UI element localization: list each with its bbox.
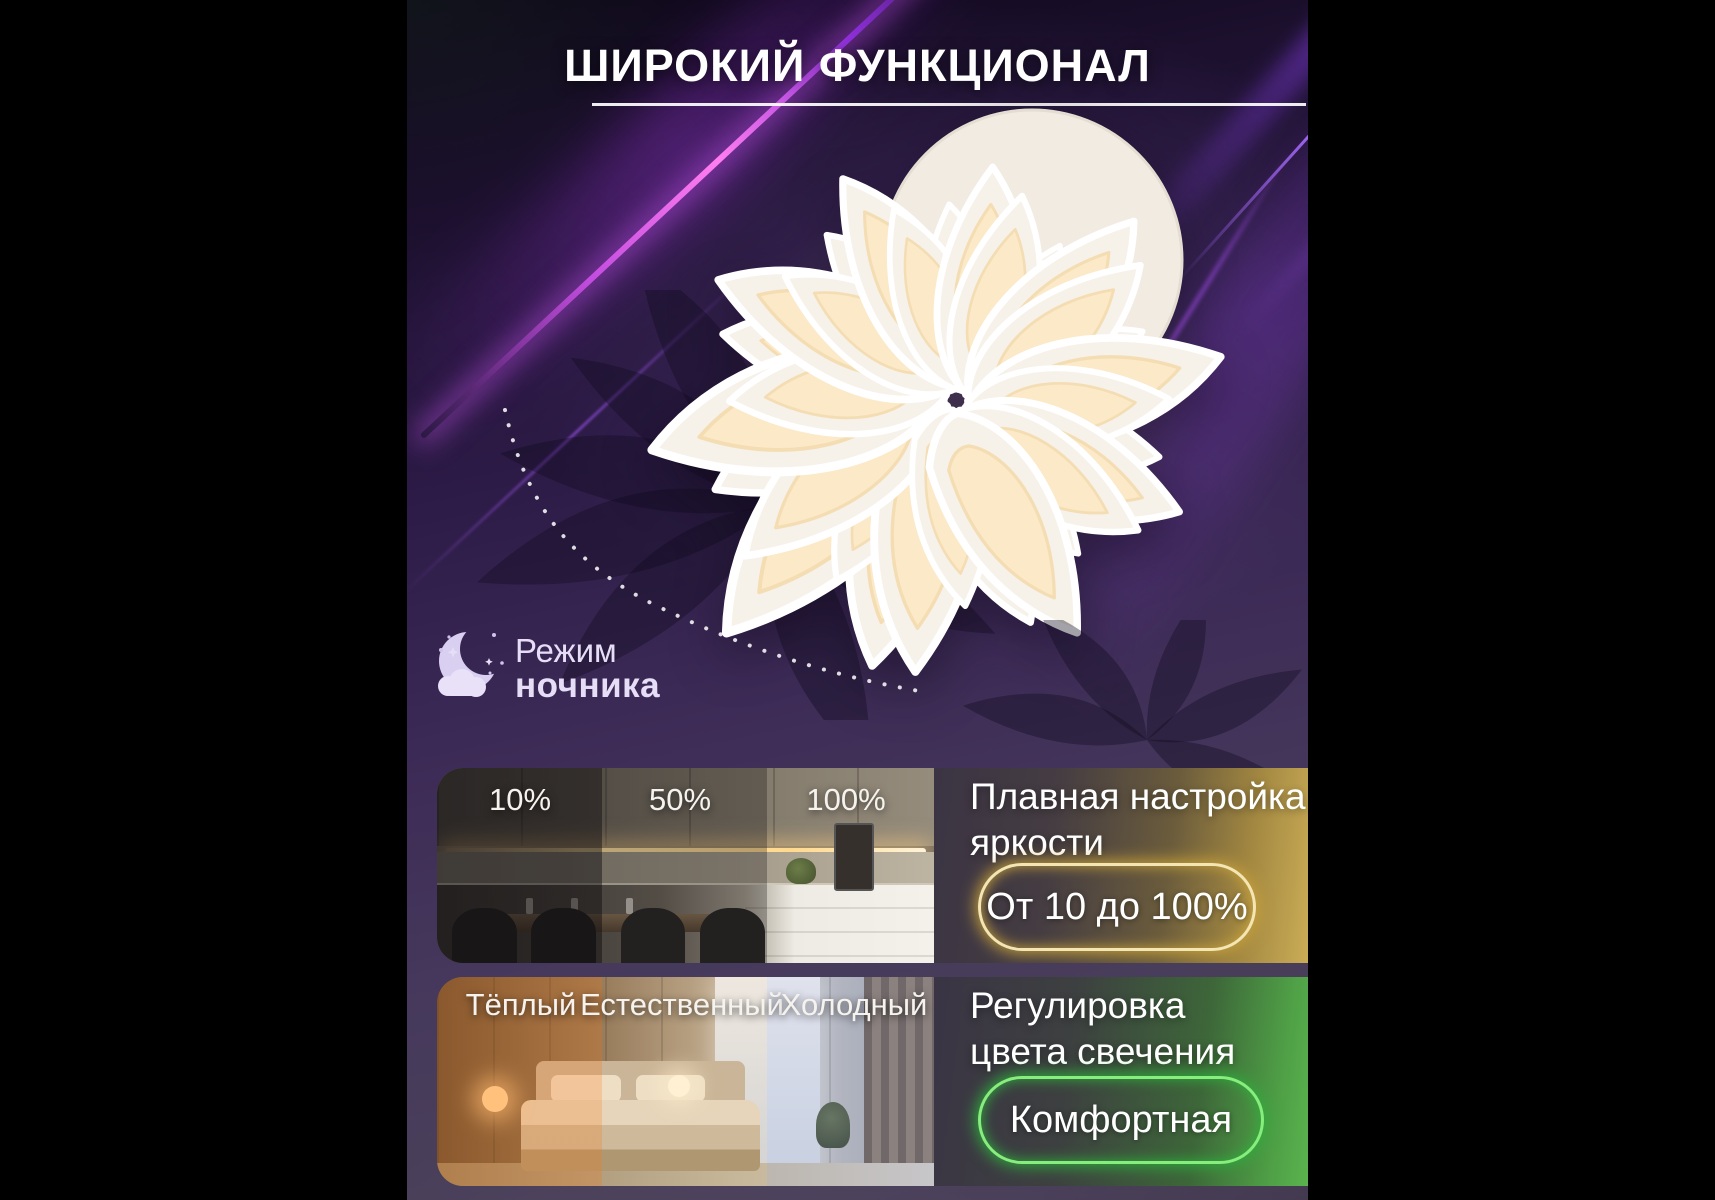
bedroom-photo: Тёплый Естественный Холодный (437, 977, 934, 1186)
feature-panel-brightness: 10% 50% 100% Плавная настройка яркости О… (437, 768, 1308, 963)
color-temperature-heading: Регулировка цвета свечения (970, 983, 1235, 1076)
photo-label-natural: Естественный (580, 987, 784, 1023)
brightness-info: Плавная настройка яркости От 10 до 100% (934, 768, 1308, 963)
brightness-heading: Плавная настройка яркости (970, 774, 1306, 867)
photo-label-cold: Холодный (781, 987, 928, 1023)
night-mode-line2: ночника (515, 668, 660, 704)
content-area: ШИРОКИЙ ФУНКЦИОНАЛ (407, 0, 1308, 1200)
chandelier-image (547, 70, 1308, 720)
photo-label-10: 10% (489, 782, 551, 818)
product-card-canvas: ШИРОКИЙ ФУНКЦИОНАЛ (0, 0, 1715, 1200)
comfort-badge: Комфортная (978, 1076, 1264, 1164)
night-mode-label: Режим ночника (431, 622, 660, 703)
photo-label-50: 50% (649, 782, 711, 818)
photo-label-100: 100% (806, 782, 885, 818)
moon-cloud-icon (431, 622, 511, 702)
brightness-range-badge: От 10 до 100% (978, 863, 1256, 951)
photo-label-warm: Тёплый (466, 987, 577, 1023)
kitchen-photo: 10% 50% 100% (437, 768, 934, 963)
feature-panel-color-temperature: Тёплый Естественный Холодный Регулировка… (437, 977, 1308, 1186)
color-temperature-info: Регулировка цвета свечения Комфортная (934, 977, 1308, 1186)
night-mode-line1: Режим (515, 634, 660, 668)
